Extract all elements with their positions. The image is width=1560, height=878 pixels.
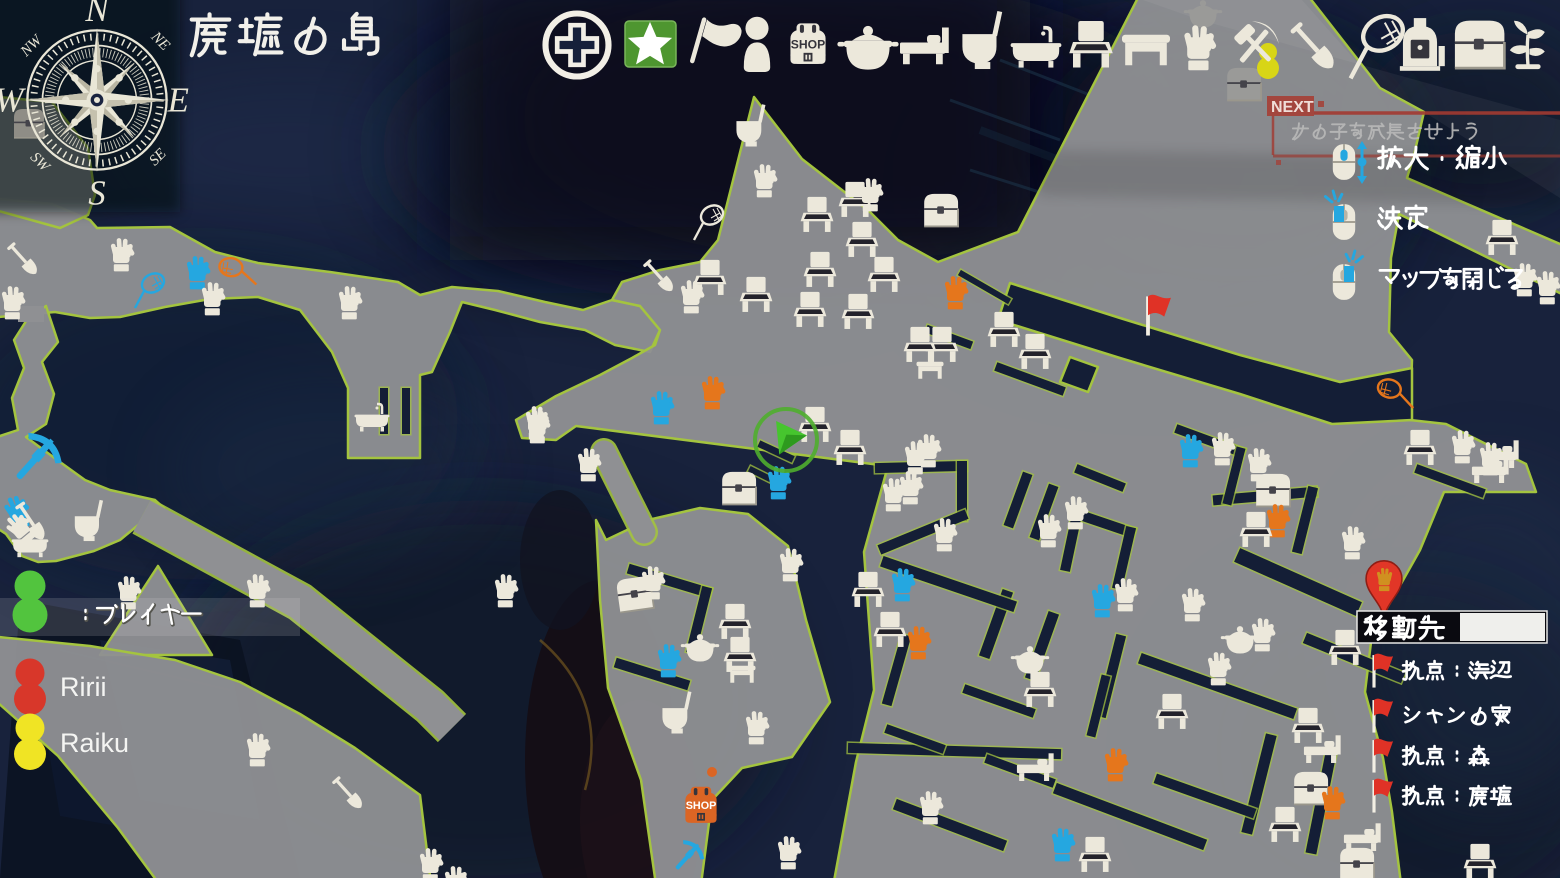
svg-text:Raiku: Raiku bbox=[60, 728, 129, 758]
svg-text:S: S bbox=[88, 173, 105, 212]
svg-text:W: W bbox=[0, 81, 26, 120]
svg-text:Ririi: Ririi bbox=[60, 672, 107, 702]
svg-text:SHOP: SHOP bbox=[791, 37, 825, 51]
svg-text:E: E bbox=[167, 81, 189, 120]
svg-text:SHOP: SHOP bbox=[686, 800, 717, 812]
svg-text:NEXT: NEXT bbox=[1271, 99, 1314, 116]
svg-text:N: N bbox=[84, 0, 110, 29]
